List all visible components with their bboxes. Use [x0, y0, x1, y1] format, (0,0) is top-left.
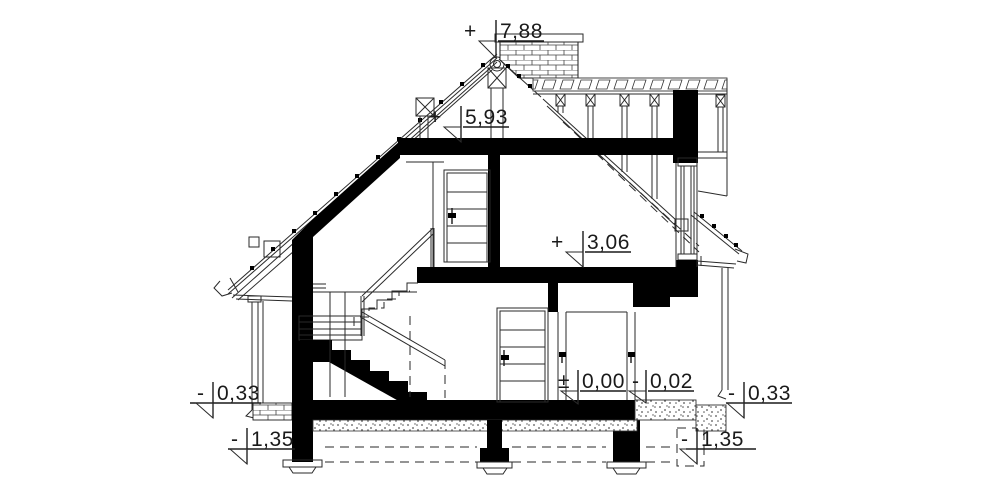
level-sign: - [728, 382, 736, 405]
center-pier-stem [487, 420, 502, 450]
right-eaves [691, 212, 748, 399]
level-marker-grade-right: - 0,33 [726, 382, 792, 418]
dormer-roof-tiles [533, 78, 727, 91]
level-marker-grade-left: - 0,33 [190, 382, 261, 418]
dormer [533, 78, 727, 252]
level-marker-foundation-left: - 1,35 [228, 428, 295, 464]
level-value: 0,33 [748, 382, 791, 405]
excavation-lines [325, 428, 704, 466]
level-value: 0,02 [650, 370, 693, 393]
porch-beam-step2 [670, 283, 698, 297]
level-sign: + [551, 231, 564, 254]
sub-slab-layer [313, 420, 637, 431]
level-value: 3,06 [587, 231, 630, 254]
sloped-roof-wall-cut [313, 141, 400, 237]
terrace-slab [635, 400, 696, 420]
center-pier [480, 448, 509, 462]
level-value: 1,35 [251, 428, 294, 451]
level-sign: + [429, 106, 442, 129]
level-value: 5,93 [465, 106, 508, 129]
dormer-wall-cut [673, 90, 698, 163]
staircase [299, 228, 445, 417]
dormer-window [675, 158, 698, 283]
ground-slab [313, 400, 637, 420]
level-value: 7,88 [500, 20, 543, 43]
level-sign: - [197, 382, 205, 405]
level-marker-floor1: + 3,06 [551, 231, 631, 267]
terrace [635, 400, 726, 431]
level-marker-foundation-right: - 1,35 [680, 428, 756, 464]
partition-stub [548, 283, 558, 312]
section-drawing: + 7,88 + 5,93 + 3,06 ± 0,00 - 0,02 - [0, 0, 1000, 496]
hall-door [497, 308, 548, 402]
level-marker-terrace: - 0,02 [629, 370, 694, 403]
footing-plate-right [607, 462, 646, 468]
batten-dots-left [250, 63, 485, 270]
foundations [283, 420, 704, 474]
floor-slab-306 [417, 267, 698, 283]
level-value: 0,00 [582, 370, 625, 393]
attic-door [444, 170, 490, 262]
level-value: 1,35 [701, 428, 744, 451]
gutter-right [735, 249, 748, 263]
level-marker-attic-ceiling: + 5,93 [429, 106, 509, 142]
level-sign: - [231, 428, 239, 451]
level-sign: ± [558, 370, 570, 393]
wall-plate [249, 237, 259, 247]
level-value: 0,33 [217, 382, 260, 405]
level-sign: - [681, 428, 689, 451]
level-sign: + [464, 20, 477, 43]
attic-ceiling-slab [398, 138, 676, 155]
level-marker-ground-floor: ± 0,00 [558, 370, 626, 404]
section-canvas: + 7,88 + 5,93 + 3,06 ± 0,00 - 0,02 - [0, 0, 1000, 496]
roof-left-slope [228, 54, 497, 300]
porch-beam-step1 [633, 283, 670, 307]
plinth-brick-left [253, 403, 292, 420]
level-sign: - [632, 370, 640, 393]
footing-plate-center [477, 462, 512, 468]
attic-interior [406, 162, 490, 267]
